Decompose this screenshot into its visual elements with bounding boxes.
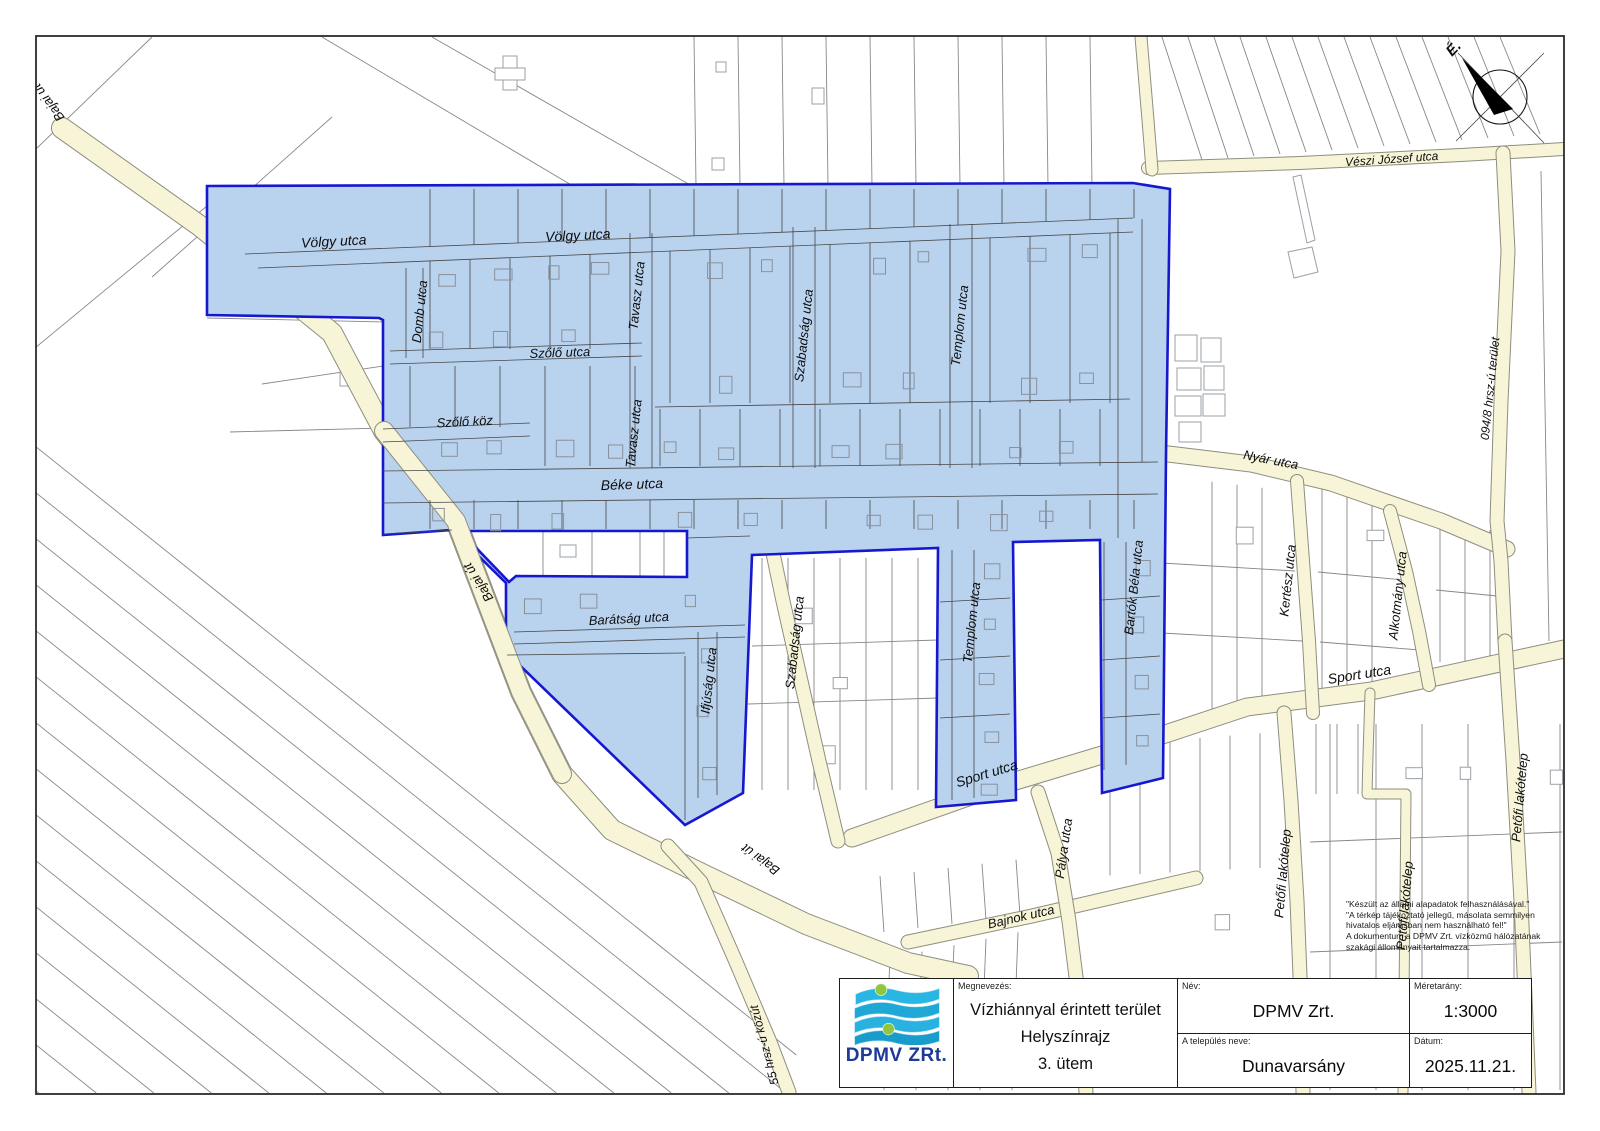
disclaimer-line: "A térkép tájékoztató jellegű, másolata …: [1346, 910, 1566, 921]
logo-cell: DPMV ZRt.: [840, 979, 953, 1087]
highlight-area: [207, 183, 1170, 825]
telepules-value: Dunavarsány: [1178, 1056, 1409, 1077]
street-label: Bajai út: [29, 80, 68, 125]
disclaimer-line: szakági állományait tartalmazza.: [1346, 942, 1566, 953]
title-block: DPMV ZRt. Megnevezés: Vízhiánnyal érinte…: [839, 978, 1532, 1088]
logo-wave-icon: [854, 1031, 939, 1045]
datum-value: 2025.11.21.: [1410, 1056, 1531, 1077]
north-compass: É.: [1443, 38, 1544, 143]
disclaimer-line: hivatalos eljárásban nem használható fel…: [1346, 920, 1566, 931]
street-label: Szőlő köz: [436, 413, 494, 431]
megnevezes-cell: Megnevezés: Vízhiánnyal érintett terület…: [953, 979, 1177, 1087]
megnevezes-label: Megnevezés:: [958, 981, 1012, 991]
logo-wave-icon: [854, 1002, 939, 1018]
megnevezes-line: Helyszínrajz: [970, 1024, 1161, 1051]
street-label: Szőlő utca: [529, 344, 590, 361]
disclaimer-line: A dokumentum a DPMV Zrt. vízközmű hálóza…: [1346, 931, 1566, 942]
street-label: Bajai út: [737, 840, 782, 878]
nev-value: DPMV Zrt.: [1178, 1001, 1409, 1022]
street-label: Völgy utca: [301, 231, 367, 250]
logo-dot-icon: [875, 984, 887, 996]
logo-dot-icon: [882, 1023, 894, 1035]
page-root: Völgy utcaVölgy utcaDomb utcaTavasz utca…: [0, 0, 1600, 1131]
datum-label: Dátum:: [1414, 1036, 1443, 1046]
disclaimer-line: "Készült az állami alapadatok felhasznál…: [1346, 899, 1566, 910]
telepules-label: A település neve:: [1182, 1036, 1251, 1046]
scale-date-cell: Méretarány: 1:3000 Dátum: 2025.11.21.: [1409, 979, 1531, 1087]
nev-label: Név:: [1182, 981, 1201, 991]
dpmv-logo: [849, 983, 945, 1045]
street-label: Bajnok utca: [986, 902, 1056, 932]
meretarany-value: 1:3000: [1410, 1001, 1531, 1022]
megnevezes-line: Vízhiánnyal érintett terület: [970, 997, 1161, 1024]
street-label: Béke utca: [600, 475, 663, 493]
logo-text: DPMV ZRt.: [846, 1045, 948, 1067]
logo-wave-icon: [854, 1017, 939, 1033]
megnevezes-line: 3. ütem: [970, 1051, 1161, 1078]
street-label: Kertész utca: [1276, 544, 1298, 617]
map-canvas: Völgy utcaVölgy utcaDomb utcaTavasz utca…: [0, 0, 1600, 1131]
meretarany-label: Méretarány:: [1414, 981, 1462, 991]
street-label: Völgy utca: [545, 225, 611, 244]
street-label: Vészi József utca: [1345, 149, 1439, 170]
logo-wave-icon: [855, 988, 939, 1004]
disclaimer-note: "Készült az állami alapadatok felhasznál…: [1346, 899, 1566, 953]
nev-telepules-cell: Név: DPMV Zrt. A település neve: Dunavar…: [1177, 979, 1409, 1087]
